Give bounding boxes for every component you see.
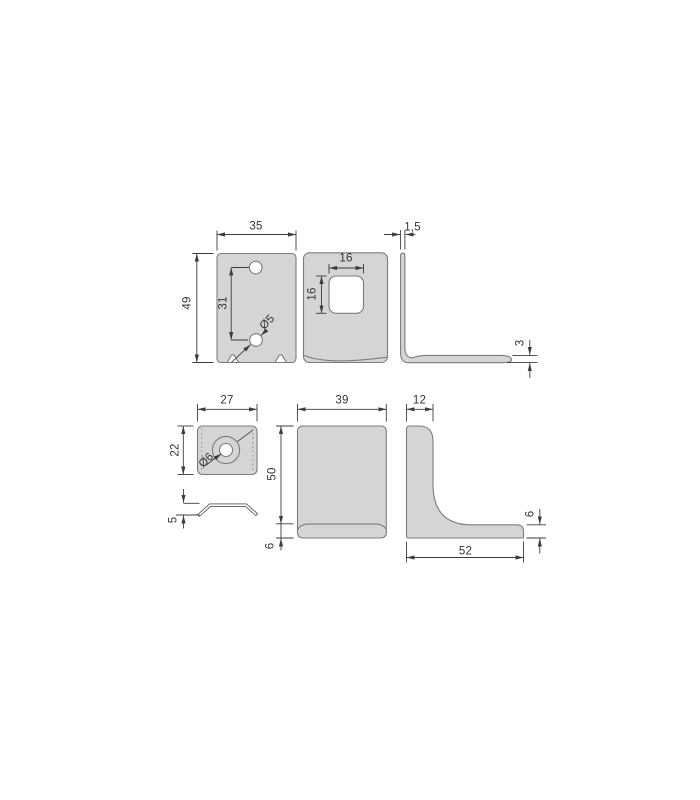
dim-thickness-6: 6 bbox=[525, 510, 537, 517]
dim-leg-12: 12 bbox=[413, 395, 426, 407]
technical-drawing-canvas: 35 49 31 Ø5 16 16 1,5 3 27 22 Ø6 5 39 50… bbox=[0, 0, 700, 800]
drawing-geometry bbox=[0, 0, 700, 800]
dim-width-39: 39 bbox=[335, 395, 348, 407]
cover-plate-hole bbox=[220, 444, 233, 457]
dim-profile-height-5: 5 bbox=[168, 517, 180, 524]
bracket-front-outline bbox=[298, 426, 387, 538]
dim-thickness-1-5: 1,5 bbox=[404, 222, 421, 234]
dim-height-50: 50 bbox=[267, 467, 279, 480]
dim-width-35: 35 bbox=[249, 221, 262, 233]
dim-lip-3: 3 bbox=[515, 339, 527, 346]
dim-width-27: 27 bbox=[220, 395, 233, 407]
dim-depth-22: 22 bbox=[170, 443, 182, 456]
front-plate-square-cutout bbox=[329, 276, 364, 313]
dim-height-49: 49 bbox=[182, 296, 194, 309]
top-profile-outline bbox=[401, 253, 512, 363]
dim-hole-spacing-31: 31 bbox=[218, 296, 230, 309]
dim-flange-6: 6 bbox=[265, 543, 277, 550]
dim-cutout-height-16: 16 bbox=[307, 287, 319, 300]
dim-cutout-width-16: 16 bbox=[339, 253, 352, 265]
dim-length-52: 52 bbox=[459, 546, 472, 558]
side-plate-hole-top bbox=[249, 261, 262, 274]
cover-profile-strip bbox=[198, 504, 258, 517]
side-plate-hole-bottom bbox=[250, 334, 263, 347]
bracket-profile-outline bbox=[407, 426, 524, 538]
